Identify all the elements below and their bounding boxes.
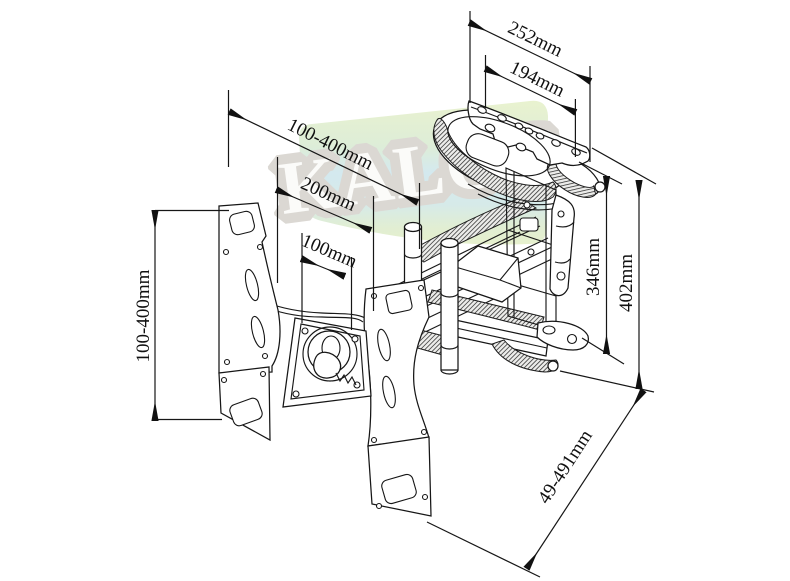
- svg-text:100mm: 100mm: [298, 230, 360, 272]
- svg-text:346mm: 346mm: [583, 238, 604, 296]
- svg-text:402mm: 402mm: [616, 254, 637, 312]
- svg-text:49-491mm: 49-491mm: [534, 426, 597, 508]
- svg-text:194mm: 194mm: [506, 57, 568, 101]
- svg-text:100-400mm: 100-400mm: [133, 269, 154, 362]
